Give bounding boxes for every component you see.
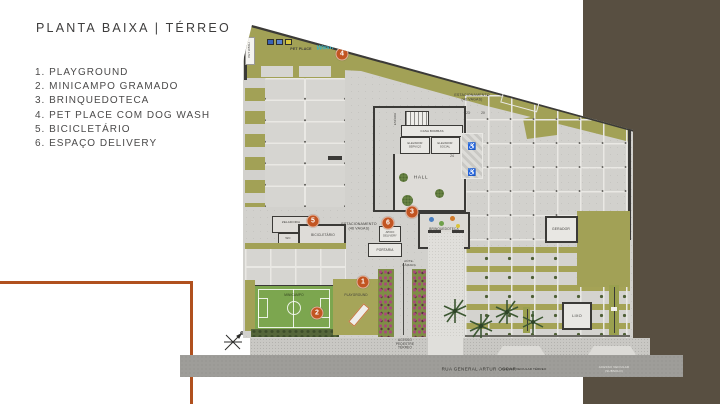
legend-item: 2. MINICAMPO GRAMADO: [35, 80, 210, 94]
parking-label-top: ESTACIONAMENTO (46 VAGAS): [454, 93, 489, 102]
pet-agility-equipment: [285, 39, 292, 45]
trash-room-label: LIXO: [572, 314, 582, 319]
plant: [435, 189, 444, 198]
gate-wall: [452, 230, 464, 233]
gate-wall: [428, 230, 441, 233]
palm-tree-icon: [520, 309, 546, 335]
stall-number: 24: [450, 154, 454, 158]
legend-label: PLAYGROUND: [49, 67, 128, 78]
palm-tree-icon: [467, 312, 495, 340]
flower-bed: [378, 269, 394, 337]
parking-label-center: ESTACIONAMENTO (46 VAGAS): [341, 222, 376, 231]
pedestrian-access-label: ACESSO PEDESTRE TÉRREO: [396, 338, 414, 350]
vehicle-ramp: [497, 346, 545, 355]
wall-segment: [328, 156, 342, 160]
left-planter-fingers: [245, 65, 265, 207]
legend-label: PET PLACE COM DOG WASH: [49, 110, 210, 121]
legend-item: 4. PET PLACE COM DOG WASH: [35, 109, 210, 123]
legend-item: 6. ESPAÇO DELIVERY: [35, 137, 210, 151]
marker-2-minicampo: 2: [311, 307, 324, 320]
field-center-circle: [287, 301, 301, 315]
playground-area: [333, 279, 383, 335]
stall-number: 20: [481, 111, 485, 115]
generator-label: GERADOR: [552, 227, 570, 231]
service-elevator-label: ELEVADOR SERVIÇO: [408, 142, 423, 148]
toy: [439, 221, 444, 226]
wash-script-label: Wash: [316, 43, 334, 51]
legend-num: 5.: [35, 124, 45, 135]
plant: [402, 195, 413, 206]
hedge: [251, 329, 339, 337]
minicampo-label: MINICAMPO: [284, 293, 304, 297]
legend-num: 1.: [35, 67, 45, 78]
marker-6-delivery: 6: [382, 217, 395, 230]
wc-label: WC: [285, 236, 290, 240]
wheelchair-icon: ♿: [468, 142, 477, 151]
page-title: PLANTA BAIXA | TÉRREO: [36, 21, 231, 35]
gatehouse-label: PORTARIA: [376, 248, 393, 252]
legend-num: 3.: [35, 95, 45, 106]
plant: [399, 173, 408, 182]
legend-label: ESPAÇO DELIVERY: [49, 138, 157, 149]
legend-label: BRINQUEDOTECA: [49, 95, 149, 106]
lower-left-parking-grid: [245, 249, 346, 285]
flower-bed: [412, 269, 426, 337]
compass-north-icon: [221, 330, 245, 354]
palm-tree-icon: [493, 298, 521, 326]
legend-label: MINICAMPO GRAMADO: [49, 81, 178, 92]
toy: [429, 217, 434, 222]
ramp-strip: [609, 285, 619, 335]
pet-agility-equipment: [276, 39, 283, 45]
hall-label: HALL: [414, 174, 428, 180]
parking-stall: [261, 66, 293, 77]
legend-item: 5. BICICLETÁRIO: [35, 123, 210, 137]
pet-agility-equipment: [267, 39, 274, 45]
vehicle-access-basement-label: ACESSO VEICULAR (SUBSOLO): [594, 365, 634, 372]
right-green-area: [577, 211, 630, 287]
marker-3-brinquedoteca: 3: [406, 206, 419, 219]
left-parking-grid: [265, 78, 345, 207]
social-elevator-label: ELEVADOR SOCIAL: [438, 142, 453, 148]
toy: [450, 216, 455, 221]
stall-number: 23: [466, 111, 470, 115]
pet-wash-label: PET WASH: [247, 42, 250, 57]
bike-room-label: BICICLETÁRIO: [311, 233, 335, 237]
legend-item: 1. PLAYGROUND: [35, 66, 210, 80]
pump-room-label: CASA BOMBAS: [420, 129, 443, 133]
vehicle-ramp: [588, 346, 636, 355]
marker-1-playground: 1: [357, 276, 370, 289]
pet-place-label: PET PLACE: [290, 47, 311, 51]
toy: [456, 224, 460, 228]
stairs-label: ESCADA: [393, 113, 396, 125]
playground-label: PLAYGROUND: [344, 293, 367, 297]
legend-label: BICICLETÁRIO: [49, 124, 130, 135]
pedestrian-walkway-extension: [428, 338, 463, 355]
legend-num: 4.: [35, 110, 45, 121]
dimension-line: [403, 263, 404, 335]
marker-5-bicicletario: 5: [307, 215, 320, 228]
delivery-room-label: APOIO DELIVERY: [383, 231, 397, 237]
floor-plan: PET WASH PET PLACE Wash ESTACIONAMENTO (…: [243, 25, 633, 338]
legend-list: 1. PLAYGROUND 2. MINICAMPO GRAMADO 3. BR…: [35, 66, 210, 151]
marker-4-pet-place: 4: [336, 48, 349, 61]
orange-frame-line-vertical: [190, 281, 193, 404]
goal-box: [258, 298, 268, 318]
legend-num: 6.: [35, 138, 45, 149]
palm-tree-icon: [441, 297, 469, 325]
legend-item: 3. BRINQUEDOTECA: [35, 94, 210, 108]
parking-stall: [299, 66, 331, 77]
green-strip: [245, 280, 255, 331]
stall-number: 19: [522, 93, 526, 97]
ante-chamber-label: ANTE- CÂMARA: [402, 259, 416, 266]
vehicle-access-ground-label: ACESSO VEICULAR TÉRREO: [502, 367, 547, 371]
orange-frame-line-horizontal: [0, 281, 193, 284]
wheelchair-icon: ♿: [468, 168, 477, 177]
legend-num: 2.: [35, 81, 45, 92]
